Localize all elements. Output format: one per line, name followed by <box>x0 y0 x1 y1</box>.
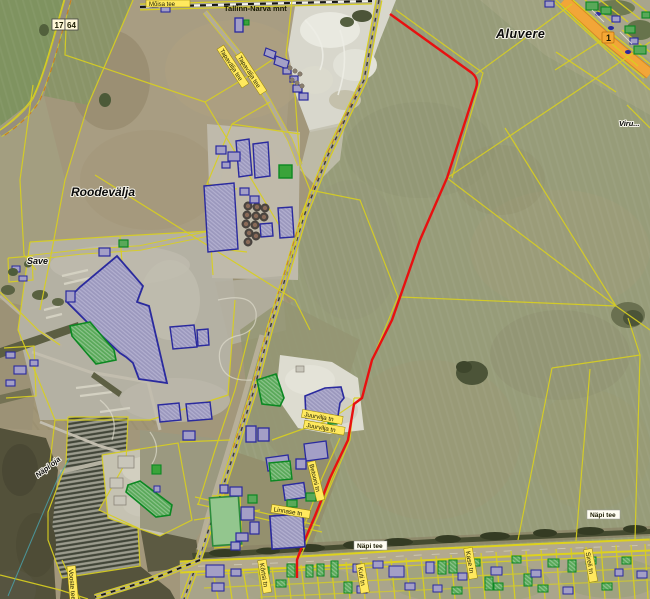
svg-text:Save: Save <box>27 256 48 266</box>
svg-text:Näpi tee: Näpi tee <box>357 543 383 550</box>
svg-text:Roodevälja: Roodevälja <box>71 185 135 199</box>
svg-text:Mõisa tee: Mõisa tee <box>149 2 176 8</box>
svg-text:17: 17 <box>55 21 64 30</box>
svg-text:1: 1 <box>606 33 611 43</box>
svg-text:Aluvere: Aluvere <box>495 27 545 41</box>
svg-text:Näpi tee: Näpi tee <box>590 512 616 519</box>
svg-text:64: 64 <box>67 21 76 30</box>
svg-text:Viru...: Viru... <box>619 119 640 128</box>
svg-text:Tallinn-Narva mnt: Tallinn-Narva mnt <box>224 4 287 13</box>
